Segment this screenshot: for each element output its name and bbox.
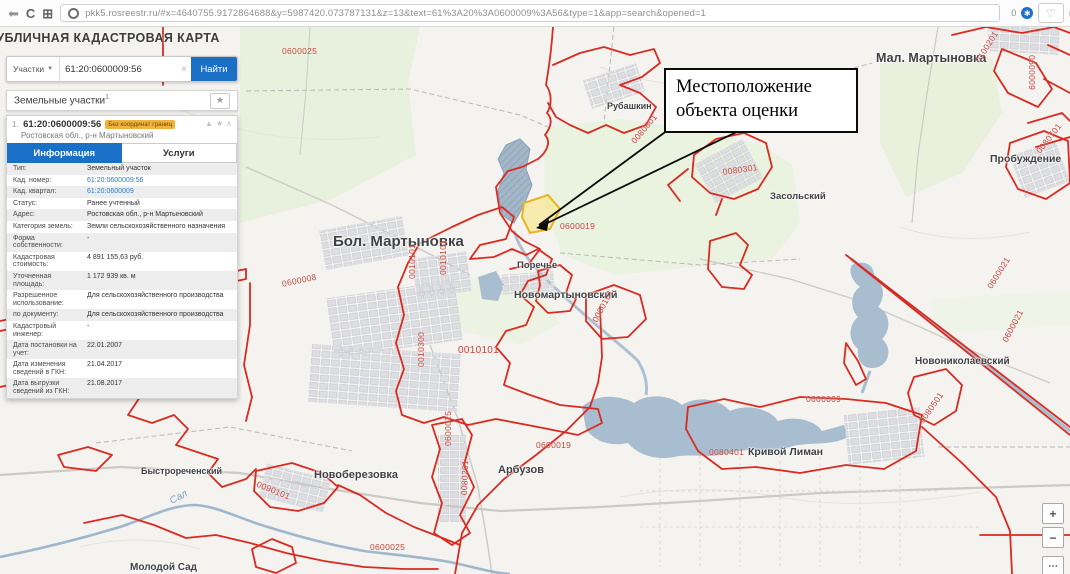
- info-row-label: Дата изменения сведений в ГКН:: [7, 359, 85, 378]
- info-row-value-link[interactable]: 61:20:0600009:56: [85, 175, 237, 187]
- info-row: Дата изменения сведений в ГКН:21.04.2017: [7, 359, 237, 378]
- toolbar-right: 0 ✱ ♡: [1011, 3, 1070, 23]
- extension-badge-icon[interactable]: ✱: [1021, 7, 1033, 19]
- search-input-value: 61:20:0600009:56: [65, 64, 142, 75]
- info-row: Дата постановки на учет:22.01.2007: [7, 340, 237, 359]
- site-info-icon[interactable]: [68, 8, 79, 19]
- info-row-label: Дата постановки на учет:: [7, 340, 85, 359]
- favorite-star-button[interactable]: ★: [210, 93, 230, 109]
- extension-count: 0: [1011, 8, 1016, 18]
- info-row-value: Ростовская обл., р-н Мартыновский: [85, 209, 237, 221]
- results-count: 1: [105, 94, 109, 101]
- clear-search-icon[interactable]: ×: [177, 64, 191, 75]
- info-row-value: Земельный участок: [85, 163, 237, 175]
- info-row-label: Адрес:: [7, 209, 85, 221]
- info-row-label: Дата выгрузки сведений из ГКН:: [7, 378, 85, 397]
- search-category-label: Участки: [13, 64, 44, 74]
- results-header: Земельные участки1 ★: [6, 90, 238, 111]
- info-row-label: Кад. квартал:: [7, 186, 85, 198]
- info-row-label: Форма собственности:: [7, 233, 85, 252]
- info-row-value: -: [85, 233, 237, 252]
- parcel-header: 1. 61:20:0600009:56 Без координат границ…: [7, 116, 237, 131]
- collapse-icon[interactable]: ∧: [226, 119, 232, 128]
- info-row-value: -: [85, 321, 237, 340]
- back-icon[interactable]: ⬅: [8, 7, 19, 20]
- no-boundaries-badge: Без координат границ: [105, 120, 175, 129]
- parcel-number[interactable]: 61:20:0600009:56: [23, 119, 101, 130]
- info-row: Форма собственности:-: [7, 233, 237, 252]
- info-row-label: Кадастровый инженер:: [7, 321, 85, 340]
- info-row-label: по документу:: [7, 309, 85, 321]
- browser-window: ⬅ C ⊞ pkk5.rosreestr.ru/#x=4640755.91728…: [0, 0, 1070, 574]
- info-row: Статус:Ранее учтенный: [7, 198, 237, 210]
- info-row-label: Категория земель:: [7, 221, 85, 233]
- info-row-value: 4 891 155,63 руб.: [85, 252, 237, 271]
- info-row: Категория земель:Земли сельскохозяйствен…: [7, 221, 237, 233]
- info-row-label: Кад. номер:: [7, 175, 85, 187]
- info-row-value: Земли сельскохозяйственного назначения: [85, 221, 237, 233]
- info-row-value: Ранее учтенный: [85, 198, 237, 210]
- search-input[interactable]: 61:20:0600009:56: [60, 57, 177, 81]
- results-title: Земельные участки1: [14, 94, 109, 106]
- parcel-info-table: Тип:Земельный участокКад. номер:61:20:06…: [7, 163, 237, 398]
- refresh-icon[interactable]: C: [26, 7, 35, 20]
- info-row-value: 21.08.2017: [85, 378, 237, 397]
- info-row-label: Статус:: [7, 198, 85, 210]
- info-row: по документу:Для сельскохозяйственного п…: [7, 309, 237, 321]
- info-row-label: Кадастровая стоимость:: [7, 252, 85, 271]
- info-row-label: Уточненная площадь:: [7, 271, 85, 290]
- favorite-icon[interactable]: ★: [216, 119, 223, 128]
- locate-on-map-icon[interactable]: ▲: [205, 119, 213, 128]
- parcel-header-icons: ▲ ★ ∧: [205, 119, 232, 128]
- info-row-value: 1 172 939 кв. м: [85, 271, 237, 290]
- info-row-value-link[interactable]: 61:20:0600009: [85, 186, 237, 198]
- app-title: ПУБЛИЧНАЯ КАДАСТРОВАЯ КАРТА: [0, 31, 220, 45]
- info-row: Дата выгрузки сведений из ГКН:21.08.2017: [7, 378, 237, 397]
- info-row-label: Тип:: [7, 163, 85, 175]
- info-row: Кадастровый инженер:-: [7, 321, 237, 340]
- annotation-box: Местоположение объекта оценки: [664, 68, 858, 133]
- tab-services[interactable]: Услуги: [122, 143, 238, 163]
- info-row: Уточненная площадь:1 172 939 кв. м: [7, 271, 237, 290]
- parcel-index: 1.: [12, 119, 19, 129]
- info-row-value: Для сельскохозяйственного производства: [85, 309, 237, 321]
- info-row: Адрес:Ростовская обл., р-н Мартыновский: [7, 209, 237, 221]
- address-bar[interactable]: pkk5.rosreestr.ru/#x=4640755.9172864688&…: [60, 4, 1000, 22]
- map-tools-button[interactable]: ⋯: [1042, 556, 1064, 574]
- annotation-text: Местоположение объекта оценки: [676, 77, 812, 121]
- chevron-down-icon: ▼: [47, 66, 53, 72]
- parcel-card: 1. 61:20:0600009:56 Без координат границ…: [6, 115, 238, 399]
- info-row: Кад. квартал:61:20:0600009: [7, 186, 237, 198]
- info-row-value: 22.01.2007: [85, 340, 237, 359]
- zoom-in-button[interactable]: +: [1042, 503, 1064, 524]
- tab-information[interactable]: Информация: [7, 143, 122, 163]
- url-text: pkk5.rosreestr.ru/#x=4640755.9172864688&…: [85, 8, 706, 19]
- favorites-heart-icon[interactable]: ♡: [1038, 3, 1064, 23]
- search-box: Участки ▼ 61:20:0600009:56 × Найти: [6, 56, 238, 82]
- info-row: Разрешенное использование:Для сельскохоз…: [7, 290, 237, 309]
- apps-grid-icon[interactable]: ⊞: [42, 7, 53, 20]
- map-zoom-controls: +−⋯: [1042, 503, 1064, 574]
- info-row: Кад. номер:61:20:0600009:56: [7, 175, 237, 187]
- info-row-value: Для сельскохозяйственного производства: [85, 290, 237, 309]
- search-category-dropdown[interactable]: Участки ▼: [7, 57, 60, 81]
- info-row: Кадастровая стоимость:4 891 155,63 руб.: [7, 252, 237, 271]
- info-row-value: 21.04.2017: [85, 359, 237, 378]
- browser-toolbar: ⬅ C ⊞ pkk5.rosreestr.ru/#x=4640755.91728…: [0, 0, 1070, 27]
- info-row: Тип:Земельный участок: [7, 163, 237, 175]
- zoom-out-button[interactable]: −: [1042, 527, 1064, 548]
- info-row-label: Разрешенное использование:: [7, 290, 85, 309]
- find-button[interactable]: Найти: [191, 57, 237, 81]
- parcel-tabs: Информация Услуги: [7, 143, 237, 163]
- parcel-subtitle: Ростовская обл., р-н Мартыновский: [7, 131, 237, 143]
